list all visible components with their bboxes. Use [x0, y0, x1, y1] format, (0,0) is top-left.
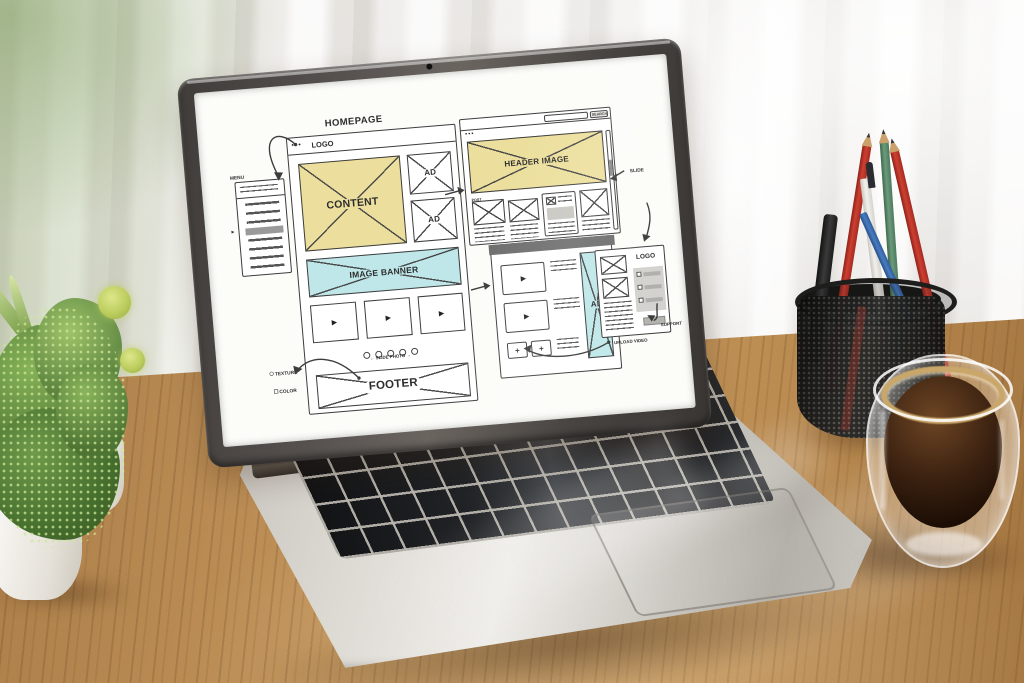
video-box: ▶	[503, 300, 549, 334]
card-thumb	[546, 197, 557, 206]
glass-rim	[873, 358, 1013, 422]
coffee-glass	[864, 350, 1024, 586]
window-dots-icon: •••	[291, 142, 302, 150]
menu-annotation: MENU	[230, 175, 244, 181]
header-image-box: HEADER IMAGE	[467, 130, 607, 193]
ad-box-top: AD	[407, 151, 454, 195]
options-panel	[633, 266, 667, 312]
article-card	[541, 191, 578, 237]
menu-pointer-icon: ▸	[231, 229, 235, 236]
upload-plus-box: +	[531, 339, 552, 357]
option-line	[644, 284, 661, 289]
ad-box-bottom: AD	[411, 197, 458, 243]
upload-text-lines	[557, 337, 580, 351]
texture-label: TEXTURE	[275, 370, 298, 377]
card-image	[602, 277, 630, 299]
play-icon: ▶	[331, 319, 337, 326]
potted-plant	[0, 268, 183, 613]
post-image	[508, 198, 540, 222]
play-icon: ▶	[439, 310, 445, 317]
ad-label: AD	[426, 215, 443, 224]
texture-annotation: TEXTURE	[269, 370, 297, 378]
foliage-texture	[0, 308, 128, 548]
search-button-label: SEARCH	[592, 112, 607, 117]
play-icon: ▶	[385, 314, 391, 321]
video-box: ▶	[500, 262, 546, 296]
logo-label: LOGO	[636, 252, 656, 261]
carousel-dots	[325, 338, 456, 367]
image-banner-box: IMAGE BANNER	[306, 247, 462, 298]
slide-annotation: SLIDE	[630, 168, 644, 174]
post-image	[472, 199, 506, 226]
option-checkbox	[636, 272, 641, 277]
plus-icon: +	[539, 344, 544, 353]
glass-highlight	[880, 410, 885, 510]
header-image-label: HEADER IMAGE	[502, 155, 571, 169]
play-icon: ▶	[524, 313, 530, 320]
video-thumbnail: ▶	[418, 293, 466, 335]
card-gray-block	[547, 206, 575, 220]
image-banner-label: IMAGE BANNER	[347, 265, 420, 280]
footer-box: FOOTER	[316, 362, 471, 409]
color-annotation: COLOR	[274, 388, 297, 395]
ad-label: AD	[422, 168, 439, 177]
checkbox-icon	[274, 389, 279, 394]
arrow-left-icon: ←	[370, 356, 375, 361]
content-label: CONTENT	[324, 196, 381, 211]
video-text-lines	[553, 297, 580, 312]
laptop-screen: HOMEPAGE ••• LOGO CONTENT AD AD	[194, 54, 696, 447]
post-text-lines	[474, 226, 505, 242]
color-label: COLOR	[279, 388, 297, 395]
support-annotation: SUPPORT	[661, 321, 683, 327]
pencil-tip	[861, 132, 874, 148]
pom-flower	[98, 286, 131, 319]
feature-lines	[582, 218, 611, 232]
arrow-homepage-to-video	[471, 286, 487, 290]
search-button: SEARCH	[590, 110, 609, 118]
arrow-landing-to-profile	[643, 202, 652, 238]
video-thumbnail: ▶	[364, 297, 413, 339]
card-text-lines	[604, 301, 634, 333]
photo-scene: HOMEPAGE ••• LOGO CONTENT AD AD	[0, 0, 1024, 683]
glass-highlight	[1000, 420, 1004, 500]
laptop-lid: HOMEPAGE ••• LOGO CONTENT AD AD	[177, 38, 713, 469]
plus-icon: +	[515, 346, 520, 355]
upload-plus-box: +	[507, 341, 528, 359]
video-text-lines	[550, 259, 577, 274]
content-box: CONTENT	[298, 155, 407, 251]
arrow-right-icon: →	[406, 353, 411, 358]
upload-video-annotation: UPLOAD VIDEO	[614, 338, 648, 345]
option-checkbox	[637, 285, 642, 290]
card-lines	[558, 195, 573, 204]
play-icon: ▶	[520, 275, 526, 282]
option-line	[645, 297, 662, 302]
window-dots-icon: •••	[465, 131, 475, 138]
video-thumbnail: ▶	[310, 302, 359, 344]
wireframe-page-homepage: ••• LOGO CONTENT AD AD IMAGE BANNER	[286, 124, 479, 415]
post-text-lines	[510, 223, 539, 239]
pencil-tip	[878, 129, 890, 144]
footer-label: FOOTER	[366, 378, 420, 394]
logo-label: LOGO	[311, 139, 334, 150]
menu-header-lines	[240, 184, 279, 195]
pom-flower	[120, 348, 145, 373]
menu-separator	[237, 194, 285, 199]
webcam-dot	[426, 63, 432, 69]
option-line	[643, 271, 660, 276]
wireframe-canvas: HOMEPAGE ••• LOGO CONTENT AD AD	[194, 54, 696, 447]
radio-icon	[269, 372, 274, 377]
feature-image	[579, 188, 609, 217]
option-checkbox	[638, 298, 643, 303]
menu-sidebar-panel: ▸	[234, 178, 292, 277]
glass-double-wall	[906, 532, 982, 556]
homepage-title: HOMEPAGE	[324, 114, 383, 130]
card-lines	[548, 221, 576, 233]
card-image	[600, 255, 627, 275]
wireframe-page-landing: SEARCH ••• HEADER IMAGE POST	[459, 107, 621, 246]
browser-topbar	[460, 108, 610, 132]
